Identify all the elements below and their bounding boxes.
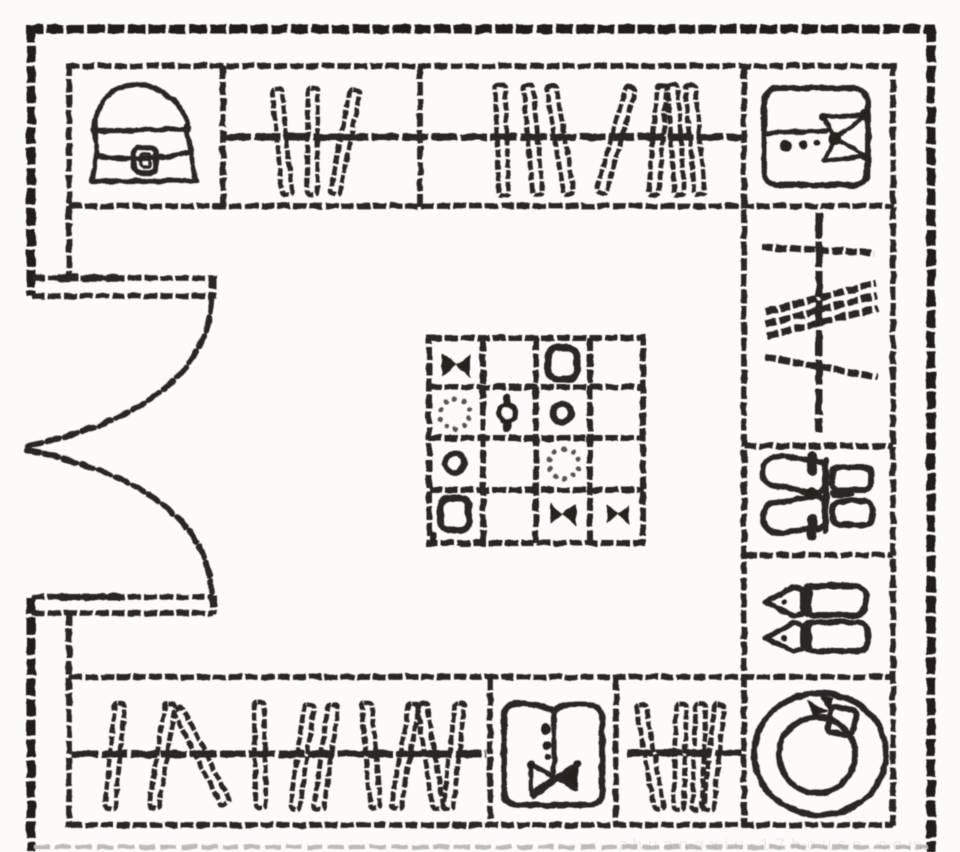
svg-text:zhuangxiu 17house.com: zhuangxiu 17house.com <box>618 835 928 852</box>
